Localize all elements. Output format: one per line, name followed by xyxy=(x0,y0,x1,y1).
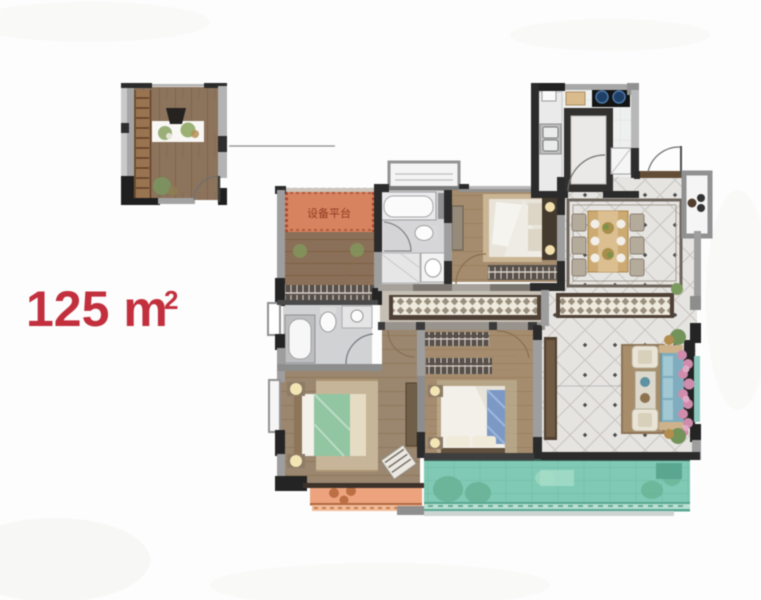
svg-text:2: 2 xyxy=(164,285,178,315)
svg-text:设备平台: 设备平台 xyxy=(307,206,351,220)
svg-text:125 m: 125 m xyxy=(26,281,168,337)
